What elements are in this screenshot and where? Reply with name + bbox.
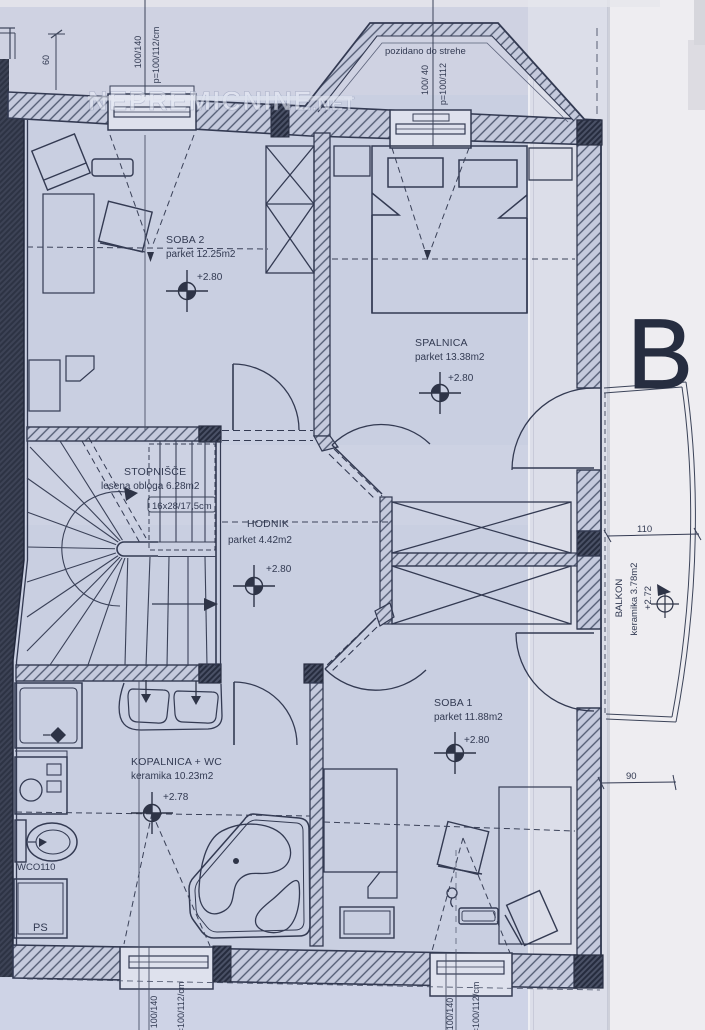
svg-text:+2.80: +2.80 bbox=[448, 373, 474, 384]
svg-text:+2.72: +2.72 bbox=[643, 586, 654, 610]
svg-text:parket 4.42m2: parket 4.42m2 bbox=[228, 535, 292, 546]
svg-text:SOBA 2: SOBA 2 bbox=[166, 234, 205, 246]
svg-text:100/140: 100/140 bbox=[149, 996, 159, 1029]
svg-text:+2.80: +2.80 bbox=[197, 272, 223, 283]
svg-text:keramika 10.23m2: keramika 10.23m2 bbox=[131, 771, 214, 782]
svg-text:+2.80: +2.80 bbox=[464, 735, 490, 746]
svg-text:STOPNIŠČE: STOPNIŠČE bbox=[124, 465, 186, 478]
svg-text:keramika 3.78m2: keramika 3.78m2 bbox=[629, 563, 640, 636]
svg-text:PS: PS bbox=[33, 922, 48, 934]
svg-text:100/140: 100/140 bbox=[445, 998, 455, 1030]
svg-text:p=100/112: p=100/112 bbox=[438, 63, 448, 105]
svg-text:pozidano do strehe: pozidano do strehe bbox=[385, 46, 466, 57]
svg-text:parket 13.38m2: parket 13.38m2 bbox=[415, 352, 485, 363]
svg-text:NEPREMICNINE: NEPREMICNINE bbox=[88, 86, 313, 116]
svg-text:110: 110 bbox=[637, 524, 652, 535]
svg-text:lesena obloga 6.28m2: lesena obloga 6.28m2 bbox=[101, 481, 200, 492]
svg-text:60: 60 bbox=[41, 55, 51, 65]
svg-text:100/ 40: 100/ 40 bbox=[420, 65, 430, 95]
svg-text:SPALNICA: SPALNICA bbox=[415, 337, 468, 349]
svg-text:B: B bbox=[627, 298, 693, 409]
svg-text:p=100/112/cm: p=100/112/cm bbox=[176, 982, 186, 1030]
svg-text:KOPALNICA + WC: KOPALNICA + WC bbox=[131, 756, 222, 768]
svg-text:+2.78: +2.78 bbox=[163, 792, 189, 803]
svg-text:SOBA 1: SOBA 1 bbox=[434, 697, 473, 709]
svg-text:90: 90 bbox=[626, 771, 637, 782]
svg-text:HODNIK: HODNIK bbox=[247, 518, 289, 530]
svg-text:BALKON: BALKON bbox=[614, 579, 625, 618]
svg-text:100/140: 100/140 bbox=[133, 36, 143, 69]
svg-text:parket 12.25m2: parket 12.25m2 bbox=[166, 249, 236, 260]
svg-text:p=100/112/cm: p=100/112/cm bbox=[471, 982, 481, 1030]
svg-text:16x28/17,5cm: 16x28/17,5cm bbox=[152, 501, 212, 512]
svg-text:parket 11.88m2: parket 11.88m2 bbox=[434, 712, 503, 723]
svg-text:+2.80: +2.80 bbox=[266, 564, 292, 575]
svg-text:p=100/112/cm: p=100/112/cm bbox=[151, 27, 161, 84]
svg-text:WCO110: WCO110 bbox=[17, 862, 55, 873]
